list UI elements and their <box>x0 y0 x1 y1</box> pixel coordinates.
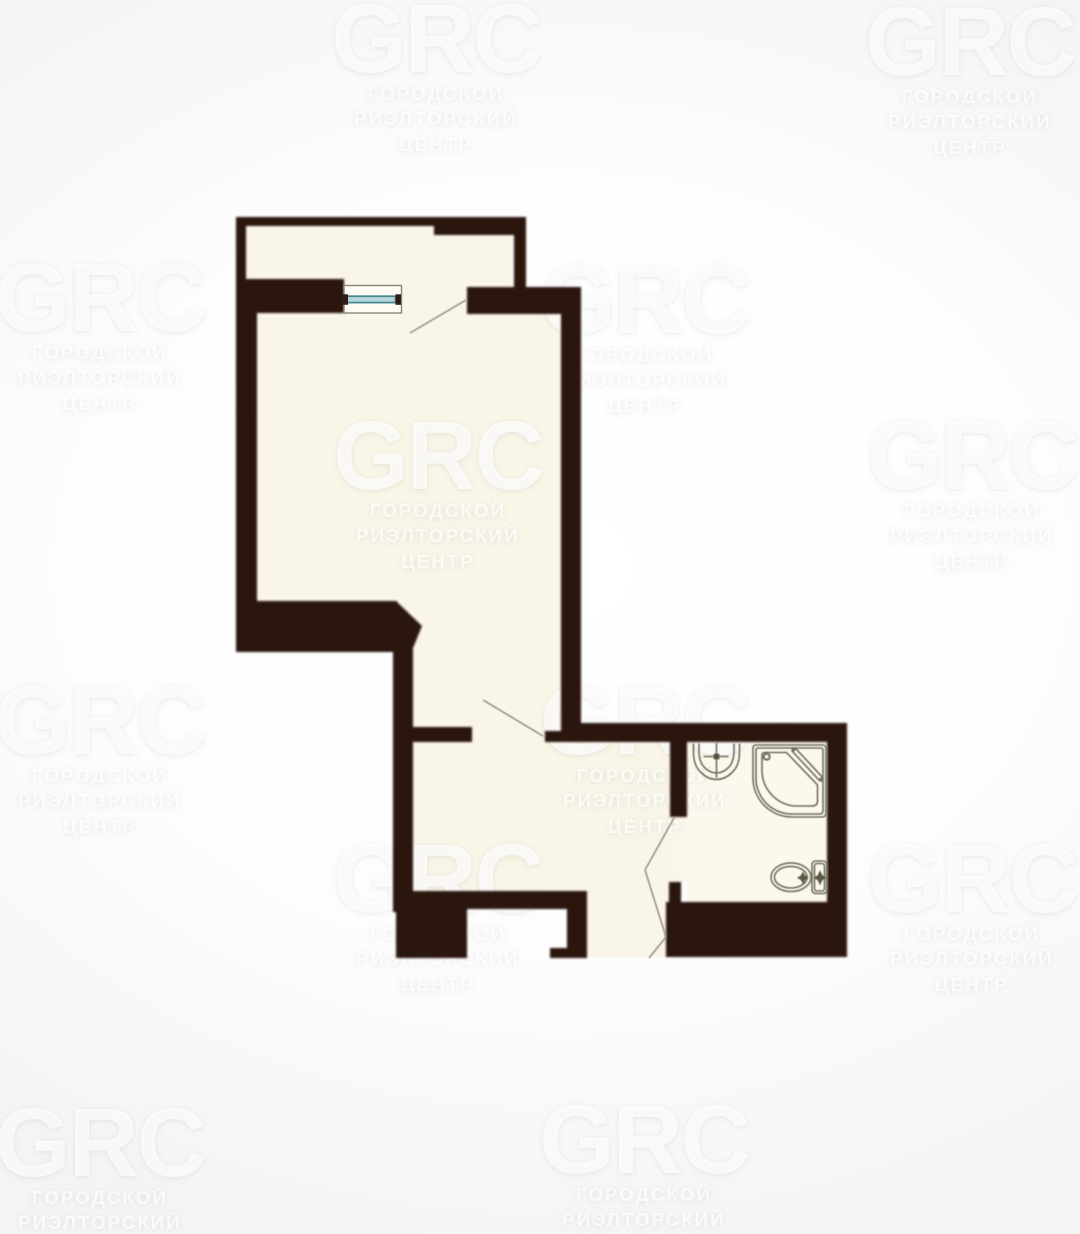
svg-text:GRC: GRC <box>867 401 1077 510</box>
svg-text:ЦЕНТР: ЦЕНТР <box>935 551 1009 572</box>
svg-text:РИЭЛТОРСКИЙ: РИЭЛТОРСКИЙ <box>563 790 727 811</box>
svg-text:РИЭЛТОРСКИЙ: РИЭЛТОРСКИЙ <box>18 1212 182 1233</box>
svg-text:GRC: GRC <box>867 824 1077 933</box>
svg-text:РИЭЛТОРСКИЙ: РИЭЛТОРСКИЙ <box>18 367 182 388</box>
svg-text:ЦЕНТР: ЦЕНТР <box>608 816 682 837</box>
svg-text:ГОРОДСКОЙ: ГОРОДСКОЙ <box>904 923 1040 944</box>
svg-text:ГОРОДСКОЙ: ГОРОДСКОЙ <box>370 500 506 521</box>
svg-text:ЦЕНТР: ЦЕНТР <box>401 974 475 995</box>
svg-text:РИЭЛТОРСКИЙ: РИЭЛТОРСКИЙ <box>354 108 518 129</box>
svg-text:ГОРОДСКОЙ: ГОРОДСКОЙ <box>32 342 168 363</box>
svg-text:ГОРОДСКОЙ: ГОРОДСКОЙ <box>32 765 168 786</box>
svg-text:ЦЕНТР: ЦЕНТР <box>608 395 682 416</box>
svg-text:ГОРОДСКОЙ: ГОРОДСКОЙ <box>32 1187 168 1208</box>
svg-text:GRC: GRC <box>333 401 543 510</box>
svg-text:ЦЕНТР: ЦЕНТР <box>933 137 1007 158</box>
svg-text:РИЭЛТОРСКИЙ: РИЭЛТОРСКИЙ <box>888 111 1052 132</box>
svg-text:РИЭЛТОРСКИЙ: РИЭЛТОРСКИЙ <box>563 369 727 390</box>
svg-text:ЦЕНТР: ЦЕНТР <box>401 551 475 572</box>
svg-text:ГОРОДСКОЙ: ГОРОДСКОЙ <box>576 1184 712 1205</box>
svg-text:GRC: GRC <box>539 1085 749 1194</box>
svg-text:ЦЕНТР: ЦЕНТР <box>935 974 1009 995</box>
svg-text:ГОРОДСКОЙ: ГОРОДСКОЙ <box>904 500 1040 521</box>
svg-text:РИЭЛТОРСКИЙ: РИЭЛТОРСКИЙ <box>356 525 520 546</box>
svg-text:РИЭЛТОРСКИЙ: РИЭЛТОРСКИЙ <box>562 1209 726 1230</box>
svg-text:ЦЕНТР: ЦЕНТР <box>399 134 473 155</box>
svg-text:ГОРОДСКОЙ: ГОРОДСКОЙ <box>577 765 713 786</box>
svg-text:ЦЕНТР: ЦЕНТР <box>63 393 137 414</box>
svg-text:GRC: GRC <box>331 0 541 93</box>
svg-text:GRC: GRC <box>0 666 205 775</box>
svg-text:GRC: GRC <box>0 1088 205 1197</box>
svg-text:РИЭЛТОРСКИЙ: РИЭЛТОРСКИЙ <box>890 525 1054 546</box>
svg-text:ГОРОДСКОЙ: ГОРОДСКОЙ <box>368 83 504 104</box>
svg-text:GRC: GRC <box>865 0 1075 96</box>
svg-text:GRC: GRC <box>0 243 205 352</box>
svg-text:ГОРОДСКОЙ: ГОРОДСКОЙ <box>902 86 1038 107</box>
svg-text:РИЭЛТОРСКИЙ: РИЭЛТОРСКИЙ <box>18 790 182 811</box>
svg-text:РИЭЛТОРСКИЙ: РИЭЛТОРСКИЙ <box>890 948 1054 969</box>
svg-text:ЦЕНТР: ЦЕНТР <box>63 816 137 837</box>
svg-text:ГОРОДСКОЙ: ГОРОДСКОЙ <box>577 344 713 365</box>
